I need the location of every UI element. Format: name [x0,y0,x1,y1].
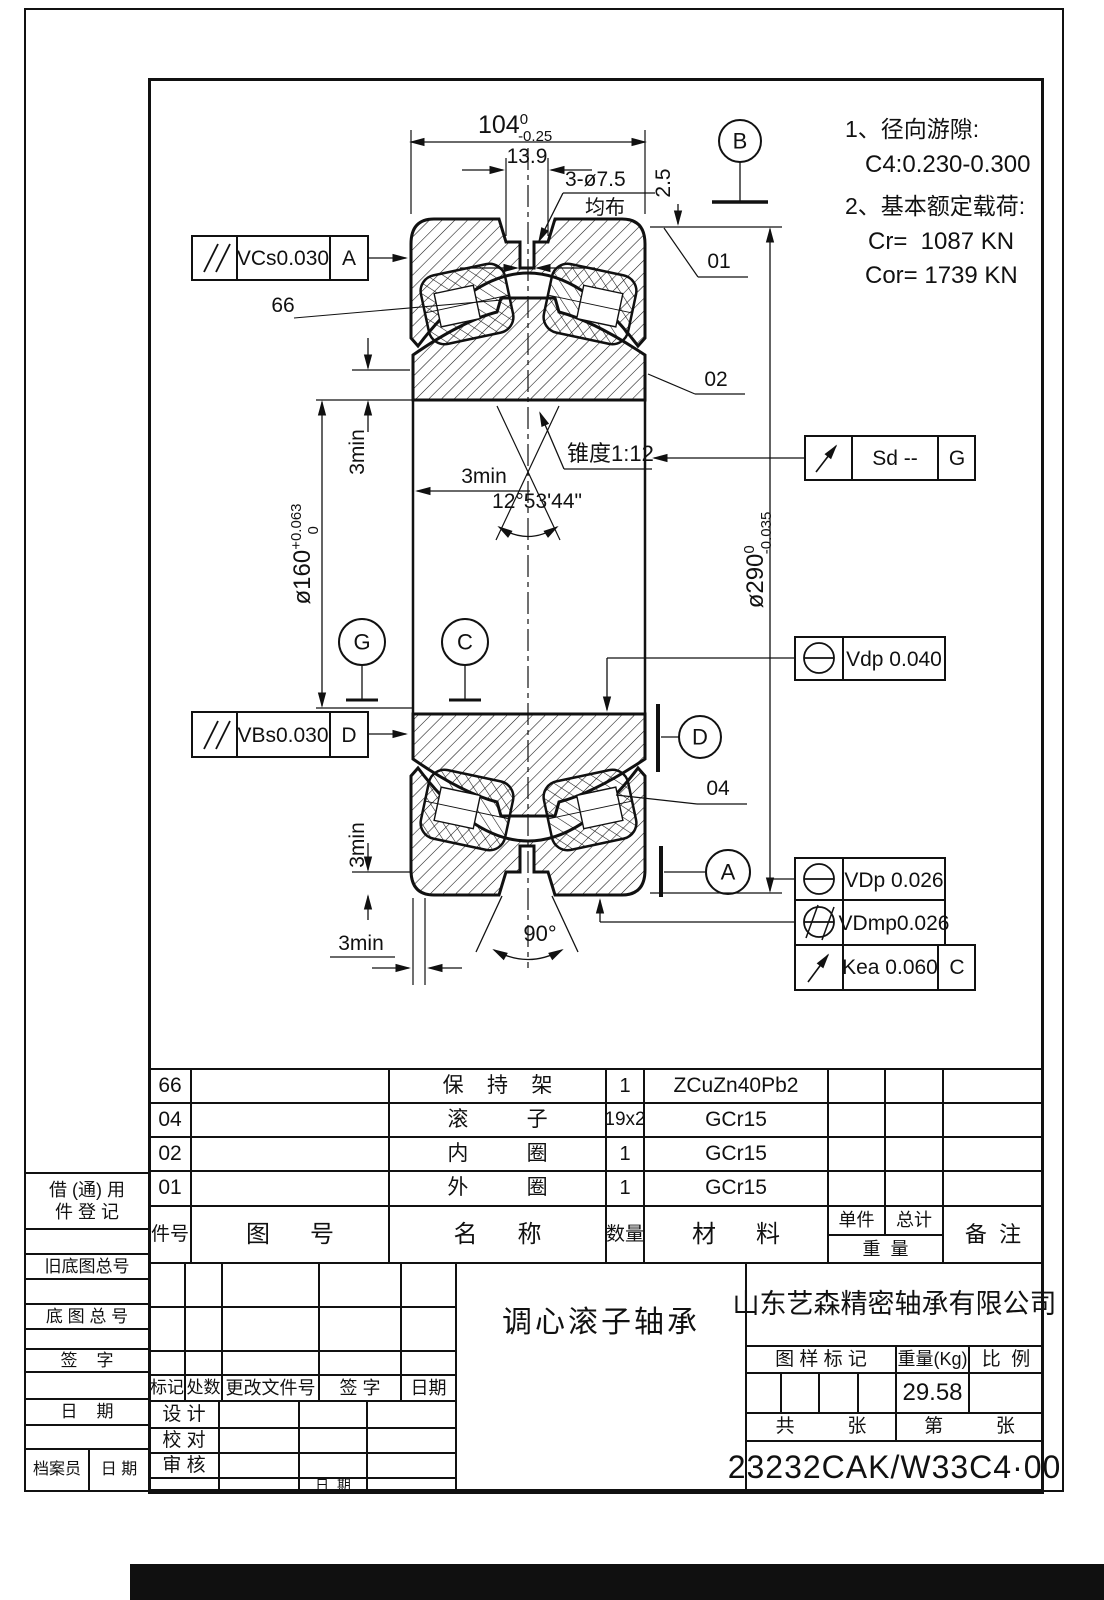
part-label-01: 01 [664,228,748,277]
part-number: 23232CAK/W33C4·00 [745,1440,1044,1494]
parts-header-total: 总计 [884,1205,944,1236]
dim-taper: 锥度1:12 12°53'44" [492,406,654,540]
svg-text:VDp 0.026: VDp 0.026 [844,869,943,892]
svg-text:13.9: 13.9 [507,145,548,168]
svg-text:66: 66 [271,294,294,317]
parts-row-name: 内 圈 [388,1136,607,1172]
parts-row-no: 66 [148,1068,192,1104]
svg-text:2.5: 2.5 [652,168,675,197]
dim-3min-top-left: 3min [346,338,410,475]
svg-text:VBs0.030: VBs0.030 [237,724,328,747]
svg-text:01: 01 [707,250,730,273]
weight-value: 29.58 [895,1372,970,1414]
parts-row-qty: 1 [605,1136,645,1172]
svg-text:12°53'44": 12°53'44" [492,490,582,513]
borrow-register-block: 借 (通) 用 件 登 记 [24,1172,150,1230]
parts-row-material: GCr15 [643,1170,829,1207]
dim-vee-90: 90° [476,896,578,960]
svg-text:D: D [692,725,708,750]
part-label-02: 02 [648,368,745,394]
svg-text:04: 04 [706,777,730,800]
borrow-line1: 借 (通) 用 [49,1179,125,1202]
svg-text:Vdp 0.040: Vdp 0.040 [846,648,942,671]
rev-header-mark: 标记 [148,1374,186,1402]
fcf-parallelism-vbs: VBs0.030 D [192,712,406,757]
product-name: 调心滚子轴承 [455,1262,747,1494]
svg-text:Cr= 1087 KN: Cr= 1087 KN [868,228,1014,255]
fcf-parallelism-vcs: VCs0.030 A [192,236,406,280]
parts-header-no: 件号 [148,1205,192,1264]
dim-3min-bottom-left-v: 3min [346,822,410,920]
svg-text:Sd --: Sd -- [872,447,918,470]
fcf-runout-kea: Kea 0.060 C [795,945,975,990]
svg-text:VDmp0.026: VDmp0.026 [839,912,950,935]
bearing-drawing: B G C D A [0,0,1104,1070]
svg-text:均布: 均布 [585,196,625,219]
parts-row-material: GCr15 [643,1102,829,1138]
archivist-date-label: 日 期 [88,1448,150,1492]
parts-header-name: 名 称 [388,1205,607,1264]
dim-3min-mid: 3min [417,465,530,491]
svg-text:90°: 90° [523,921,556,946]
parts-header-material: 材 料 [643,1205,829,1264]
dim-offset-2.5: 2.5 [650,168,782,227]
archivist-label: 档案员 [24,1448,90,1492]
parts-header-remark: 备 注 [942,1205,1044,1264]
technical-notes: 1、径向游隙: C4:0.230-0.300 2、基本额定载荷: Cr= 108… [845,116,1030,289]
parts-row-material: GCr15 [643,1136,829,1172]
rev-header-doc: 更改文件号 [221,1374,320,1402]
parts-row-no: 04 [148,1102,192,1138]
sheet-no-label: 第 张 [895,1412,1044,1442]
svg-text:C: C [457,630,473,655]
svg-text:2、基本额定载荷:: 2、基本额定载荷: [845,193,1025,219]
parts-row-qty: 1 [605,1170,645,1207]
parts-row-name: 保 持 架 [388,1068,607,1104]
company-name: 山东艺森精密轴承有限公司 [745,1262,1044,1347]
sign-date-label: 日 期 [298,1477,368,1494]
date-label: 日 期 [24,1398,150,1426]
svg-text:1040-0.25: 1040-0.25 [478,111,552,145]
sign-check-label: 校 对 [148,1427,220,1454]
parts-header-dwg: 图 号 [190,1205,390,1264]
svg-text:3min: 3min [461,465,507,488]
svg-text:3min: 3min [346,429,369,475]
parts-header-qty: 数量 [605,1205,645,1264]
old-base-drawing-no: 旧底图总号 [24,1253,150,1280]
svg-text:G: G [949,447,965,470]
parts-header-weight: 重 量 [827,1234,944,1264]
parts-header-unit: 单件 [827,1205,886,1236]
fcf-variation-vdp2: VDp 0.026 [772,858,945,900]
svg-text:3min: 3min [346,822,369,868]
parts-row-name: 外 圈 [388,1170,607,1207]
svg-text:G: G [353,630,370,655]
svg-text:A: A [342,247,356,270]
datum-balloon-C: C [442,619,488,700]
sign-design-label: 设 计 [148,1400,220,1429]
svg-text:ø160+0.0630: ø160+0.0630 [288,504,322,605]
parts-row-qty: 19x2 [605,1102,645,1138]
borrow-line2: 件 登 记 [55,1201,119,1224]
dim-3min-bottom-left-h: 3min [330,898,462,985]
parts-row-name: 滚 子 [388,1102,607,1138]
svg-text:A: A [721,860,736,885]
svg-text:C: C [949,956,964,979]
svg-text:Cor= 1739 KN: Cor= 1739 KN [865,262,1018,289]
svg-text:B: B [733,129,748,154]
scan-artifact-strip [130,1564,1104,1600]
parts-row-material: ZCuZn40Pb2 [643,1068,829,1104]
svg-text:锥度1:12: 锥度1:12 [567,441,654,466]
parts-row-dwg [190,1068,390,1104]
svg-text:02: 02 [704,368,727,391]
rev-header-count: 处数 [184,1374,223,1402]
base-drawing-no: 底 图 总 号 [24,1303,150,1330]
sheets-total-label: 共 张 [745,1412,897,1442]
parts-row-no: 02 [148,1136,192,1172]
signature-label: 签 字 [24,1348,150,1373]
datum-balloon-D: D [658,704,721,772]
sign-audit-label: 审 核 [148,1452,220,1479]
datum-balloon-A: A [661,846,750,897]
rev-header-sign: 签 字 [318,1374,402,1402]
scale-label: 比 例 [968,1345,1044,1374]
svg-text:D: D [341,724,356,747]
svg-text:1、径向游隙:: 1、径向游隙: [845,116,979,142]
parts-row-no: 01 [148,1170,192,1207]
fcf-runout-sd: Sd -- G [654,436,975,480]
svg-text:C4:0.230-0.300: C4:0.230-0.300 [865,151,1030,178]
drawing-mark-label: 图 样 标 记 [745,1345,897,1374]
fcf-variation-vdp: Vdp 0.040 [607,637,945,710]
svg-text:3min: 3min [338,932,384,955]
rev-header-date: 日期 [400,1374,457,1402]
drawing-sheet: B G C D A [0,0,1104,1600]
fcf-variation-vdmp: VDmp0.026 [600,900,949,945]
datum-balloon-B: B [712,120,768,202]
datum-balloon-G: G [339,619,385,700]
weight-label: 重量(Kg) [895,1345,970,1374]
svg-text:3-ø7.5: 3-ø7.5 [565,168,626,191]
parts-row-qty: 1 [605,1068,645,1104]
svg-text:VCs0.030: VCs0.030 [237,247,329,270]
svg-text:Kea 0.060: Kea 0.060 [842,956,938,979]
